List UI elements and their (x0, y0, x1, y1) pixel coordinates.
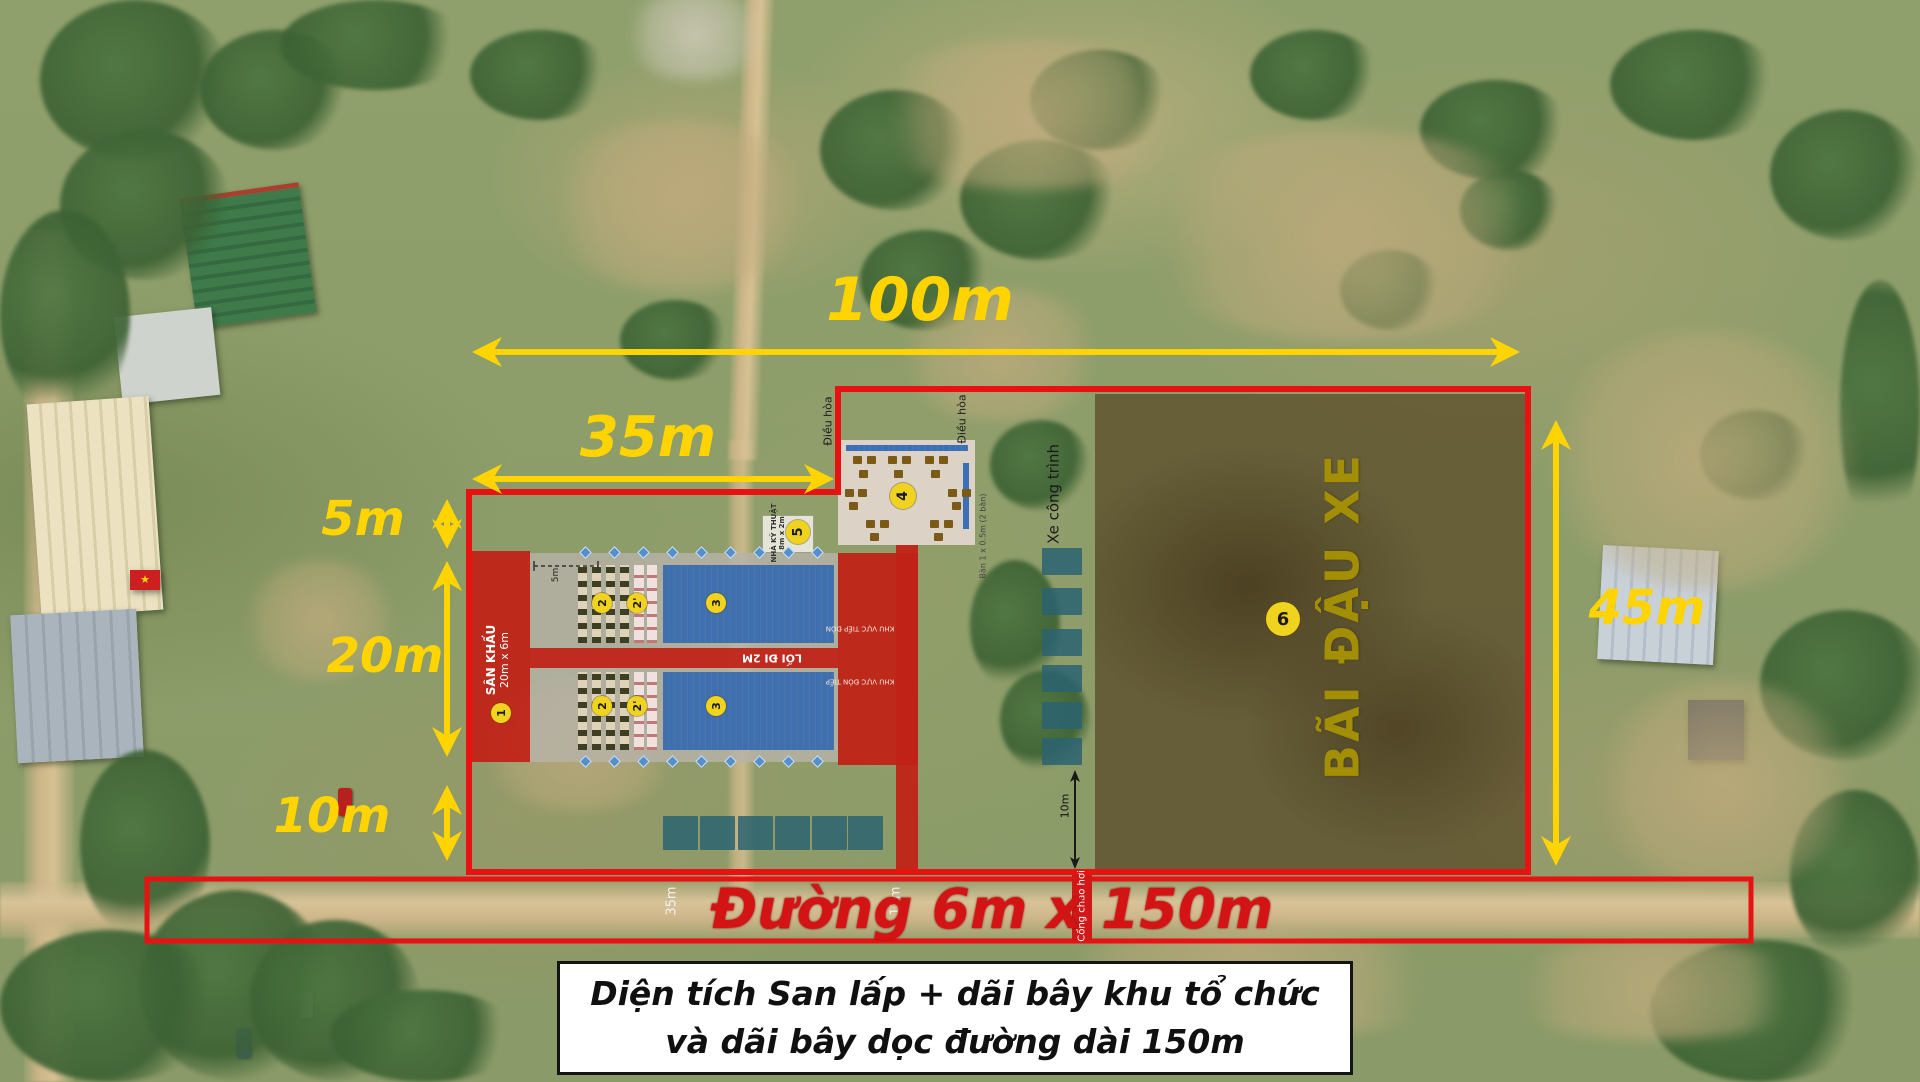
reception-zone-lower-label: KHU VỰC ĐÓN TIẾP (826, 678, 895, 685)
dim-label-10m: 10m (274, 792, 391, 840)
stage-name: SÂN KHẤU (485, 625, 499, 696)
inner-10m-label: 10m (1060, 794, 1073, 819)
road-35m-label: 35m (666, 886, 681, 915)
zone-number-4: 4 (890, 483, 916, 509)
stage-size: 20m x 6m (499, 625, 512, 696)
construction-vehicles-label: Xe công trình (1045, 444, 1062, 544)
dim-label-5m: 5m (321, 495, 404, 543)
caption-line2: và dãi bây dọc đường dài 150m (560, 1018, 1350, 1066)
aisle-label: LỐI ĐI 2M (742, 653, 802, 664)
zone-number-5: 5 (786, 520, 810, 544)
zone-number-2: 2 (592, 593, 612, 613)
road-label: Đường 6m x 150m (711, 877, 1274, 941)
technical-house-name: NHÀ KỸ THUẬT (770, 503, 778, 562)
ac-note-left: Điều hòa (823, 396, 836, 445)
dim-label-20m: 20m (327, 632, 444, 680)
parking-label: BÃI ĐẬU XE (1317, 452, 1370, 780)
technical-house-label: NHÀ KỸ THUẬT 8m x 2m (770, 503, 786, 562)
caption-box: Diện tích San lấp + dãi bây khu tổ chức … (557, 961, 1353, 1075)
zone-number-6: 6 (1266, 602, 1300, 636)
caption-line1: Diện tích San lấp + dãi bây khu tổ chức (560, 970, 1350, 1018)
seating-5m-label: 5m (551, 568, 561, 583)
zone-number-3: 3 (706, 696, 726, 716)
reception-zone-upper-label: KHU VỰC TIẾP ĐÓN (826, 625, 895, 632)
zone-number-3: 3 (706, 593, 726, 613)
zone-number-1: 1 (491, 703, 511, 723)
zone-number-2: 2 (592, 696, 612, 716)
technical-house-size: 8m x 2m (778, 503, 786, 562)
ac-note-right: Điều hòa (957, 394, 970, 443)
stage-label: SÂN KHẤU 20m x 6m (485, 625, 511, 696)
zone-number-2p: 2' (627, 593, 647, 613)
zone-number-2p: 2' (627, 696, 647, 716)
dim-label-45m: 45m (1589, 584, 1706, 632)
table-note: Bàn 1 x 0.5m (2 bàn) (978, 494, 987, 579)
dim-label-100m: 100m (826, 270, 1014, 330)
dim-label-35m: 35m (580, 410, 716, 466)
site-plan-aerial-view: ★ 100m (0, 0, 1920, 1082)
